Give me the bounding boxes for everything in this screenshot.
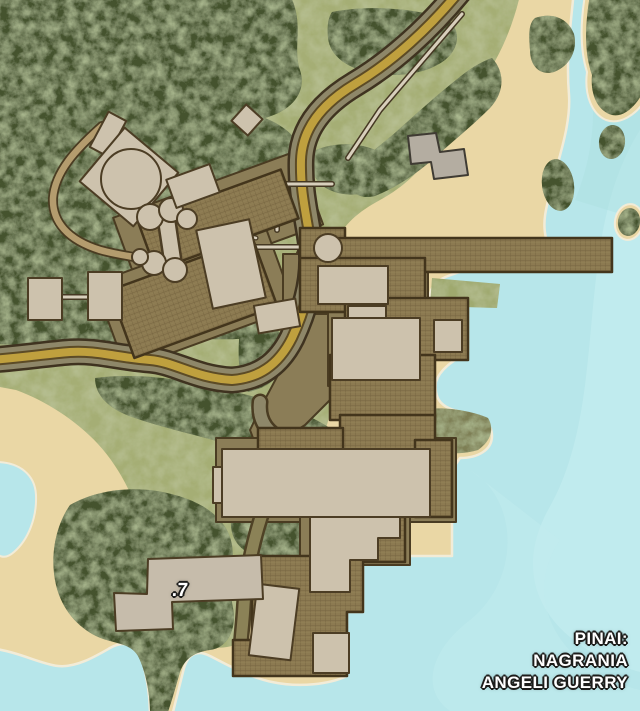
dock-shed <box>313 633 349 673</box>
caption-line-1: PINAI: <box>482 628 628 650</box>
small-building <box>88 272 122 320</box>
pier-tank <box>314 234 342 262</box>
large-hall <box>222 449 430 517</box>
central-building <box>332 318 420 380</box>
location-marker-7: .7 <box>171 580 188 602</box>
large-storage-tank <box>101 149 161 209</box>
small-building <box>28 278 62 320</box>
game-map: .7 PINAI: NAGRANIA ANGELI GUERRY <box>0 0 640 711</box>
map-caption: PINAI: NAGRANIA ANGELI GUERRY <box>482 628 628 694</box>
caption-line-2: NAGRANIA <box>482 650 628 672</box>
map-canvas <box>0 0 640 711</box>
annex <box>434 320 462 352</box>
harbor-building <box>318 266 388 304</box>
small-building <box>254 299 300 334</box>
caption-line-3: ANGELI GUERRY <box>482 672 628 694</box>
